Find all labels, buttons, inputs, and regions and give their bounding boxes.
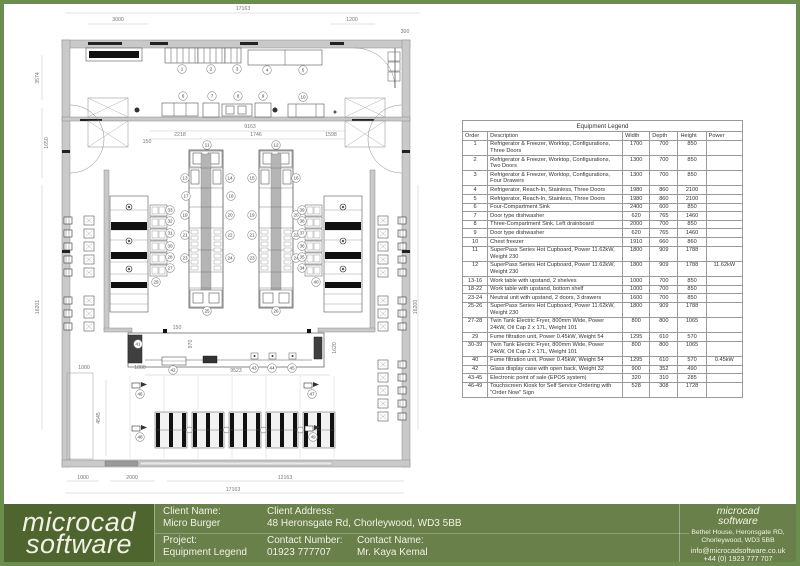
chair xyxy=(398,243,406,250)
item-marker-number: 36 xyxy=(299,244,305,249)
legend-cell: 1460 xyxy=(678,229,706,238)
hot-cupboard xyxy=(190,290,222,307)
legend-cell: SuperPass Series Hot Cupboard, Power 11.… xyxy=(488,246,623,261)
kiosk-flag xyxy=(313,382,319,387)
legend-col-header: Order xyxy=(463,132,488,141)
plan-shape xyxy=(152,231,158,238)
legend-cell: 570 xyxy=(678,333,706,342)
legend-cell: 600 xyxy=(650,203,678,212)
legend-cell: Door type dishwasher xyxy=(488,229,623,238)
legend-cell: 46-49 xyxy=(463,382,488,397)
item-marker-number: 29 xyxy=(153,280,159,285)
legend-col-header: Description xyxy=(488,132,623,141)
floor-drain xyxy=(273,108,278,113)
legend-cell xyxy=(706,212,742,221)
wall xyxy=(104,328,132,332)
legend-cell: 700 xyxy=(650,285,678,294)
legend-cell: Refrigerator & Freezer, Worktop, Configu… xyxy=(488,140,623,155)
item-marker-number: 43 xyxy=(251,366,257,371)
legend-cell: Work table with upstand, bottom shelf xyxy=(488,285,623,294)
client-fields: Client Name: Micro Burger Client Address… xyxy=(154,504,689,562)
legend-cell: 765 xyxy=(650,212,678,221)
wall-segment xyxy=(240,42,258,45)
item-marker-number: 1 xyxy=(181,67,184,72)
legend-cell: 850 xyxy=(678,156,706,171)
logo-block: microcad software xyxy=(4,504,154,562)
dimension-label: 1200 xyxy=(346,17,358,23)
legend-cell: Work table with upstand, 2 shelves xyxy=(488,277,623,286)
dimension-label: 4545 xyxy=(96,412,102,424)
legend-cell: 2 xyxy=(463,156,488,171)
legend-title: Equipment Legend xyxy=(463,121,743,132)
counter-unit xyxy=(128,335,142,363)
legend-cell: 1000 xyxy=(623,285,650,294)
item-marker-number: 20 xyxy=(293,213,299,218)
table-top xyxy=(111,282,147,288)
table-row: 30-39Twin Tank Electric Fryer, 800mm Wid… xyxy=(463,341,743,356)
legend-cell: 42 xyxy=(463,365,488,374)
legend-cell: 909 xyxy=(650,246,678,261)
table-connector xyxy=(261,427,267,433)
legend-cell: 1300 xyxy=(623,171,650,186)
plan-shape xyxy=(307,243,313,250)
legend-cell: 909 xyxy=(650,302,678,317)
legend-cell: SuperPass Series Hot Cupboard, Power 11.… xyxy=(488,261,623,276)
legend-cell: 2000 xyxy=(623,220,650,229)
legend-cell: 27-28 xyxy=(463,317,488,332)
counter-shelf xyxy=(89,51,139,58)
plan-shape xyxy=(214,266,221,270)
dimension-label: 2000 xyxy=(126,475,138,481)
plan-shape xyxy=(191,260,198,264)
item-marker-number: 26 xyxy=(273,309,279,314)
plan-shape xyxy=(314,219,320,226)
plan-shape xyxy=(159,231,165,238)
plan-shape xyxy=(214,242,221,246)
item-marker-number: 18 xyxy=(228,194,234,199)
wall-cabinet xyxy=(388,62,400,71)
legend-cell: 1460 xyxy=(678,212,706,221)
item-marker-number: 14 xyxy=(227,176,233,181)
table-top xyxy=(325,282,361,288)
dimension-label: 300 xyxy=(401,29,410,35)
legend-cell: Glass display case with open back, Weigh… xyxy=(488,365,623,374)
company-name: microcad software xyxy=(680,507,796,527)
legend-cell: 700 xyxy=(650,140,678,155)
chair xyxy=(398,217,406,224)
counter-unit xyxy=(314,337,322,359)
legend-cell: 1788 xyxy=(678,302,706,317)
plan-shape xyxy=(214,260,221,264)
dimension-label: 150 xyxy=(173,325,182,331)
item-marker-number: 12 xyxy=(273,143,279,148)
legend-cell: Fume filtration unit, Power 0.45kW, Weig… xyxy=(488,333,623,342)
title-block: microcad software Client Name: Micro Bur… xyxy=(4,504,796,562)
item-marker-number: 37 xyxy=(299,231,305,236)
legend-cell: 1600 xyxy=(623,294,650,303)
item-marker-number: 40 xyxy=(313,280,319,285)
item-marker-number: 48 xyxy=(137,435,143,440)
legend-cell: 620 xyxy=(623,212,650,221)
dimension-label: 9163 xyxy=(244,124,256,130)
legend-cell: 660 xyxy=(650,238,678,247)
legend-cell xyxy=(706,246,742,261)
item-marker-number: 30 xyxy=(167,244,173,249)
plan-shape xyxy=(307,267,313,274)
pillar xyxy=(307,329,311,333)
dimension-label: 1000 xyxy=(77,475,89,481)
legend-cell: 800 xyxy=(650,341,678,356)
queue-area xyxy=(67,373,93,459)
plan-shape xyxy=(307,231,313,238)
legend-cell: 850 xyxy=(678,294,706,303)
chair xyxy=(398,297,406,304)
chair xyxy=(398,374,406,381)
legend-cell: 18-22 xyxy=(463,285,488,294)
dimension-label: 1000 xyxy=(134,365,146,371)
item-marker-number: 20 xyxy=(227,213,233,218)
wall xyxy=(318,328,375,332)
legend-cell: SuperPass Series Hot Cupboard, Power 11.… xyxy=(488,302,623,317)
legend-cell: 2400 xyxy=(623,203,650,212)
legend-cell: 860 xyxy=(678,238,706,247)
legend-cell: 1065 xyxy=(678,341,706,356)
stockpot-dot xyxy=(342,206,344,208)
plan-shape xyxy=(284,236,291,240)
legend-cell: 285 xyxy=(678,374,706,383)
legend-cell: Touchscreen Kiosk for Self Service Order… xyxy=(488,382,623,397)
plan-shape xyxy=(191,236,198,240)
legend-cell: Chest freezer xyxy=(488,238,623,247)
table-row: 13-16Work table with upstand, 2 shelves1… xyxy=(463,277,743,286)
plan-shape xyxy=(284,266,291,270)
table-connector xyxy=(187,427,193,433)
plan-shape xyxy=(214,230,221,234)
dimension-label: 3574 xyxy=(35,72,41,84)
item-marker-number: 35 xyxy=(299,255,305,260)
table-row: 29Fume filtration unit, Power 0.45kW, We… xyxy=(463,333,743,342)
plan-shape xyxy=(261,242,268,246)
chair xyxy=(64,310,72,317)
plan-shape xyxy=(284,260,291,264)
legend-cell: 800 xyxy=(623,341,650,356)
chest-freezer xyxy=(288,104,324,117)
table-row: 25-26SuperPass Series Hot Cupboard, Powe… xyxy=(463,302,743,317)
field-label: Client Name: xyxy=(163,506,263,518)
item-marker-number: 39 xyxy=(299,208,305,213)
legend-cell xyxy=(706,374,742,383)
legend-cell xyxy=(706,229,742,238)
table-row: 7Door type dishwasher6207651460 xyxy=(463,212,743,221)
plan-shape xyxy=(261,248,268,252)
legend-cell: 25-26 xyxy=(463,302,488,317)
item-marker-number: 33 xyxy=(167,208,173,213)
legend-cell: 6 xyxy=(463,203,488,212)
chair xyxy=(398,413,406,420)
plan-shape xyxy=(191,230,198,234)
legend-cell: 1000 xyxy=(623,277,650,286)
legend-cell: 1800 xyxy=(623,302,650,317)
legend-cell: 620 xyxy=(623,229,650,238)
dimension-label: 150 xyxy=(143,139,152,145)
chair xyxy=(64,230,72,237)
plan-shape xyxy=(314,243,320,250)
legend-cell: 1800 xyxy=(623,261,650,276)
legend-cell: 850 xyxy=(678,220,706,229)
plan-shape xyxy=(261,260,268,264)
company-name-line2: software xyxy=(680,517,796,527)
dimension-label: 1746 xyxy=(250,132,262,138)
plan-shape xyxy=(284,242,291,246)
legend-cell xyxy=(706,302,742,317)
wall-segment xyxy=(62,250,70,253)
wall xyxy=(370,170,375,330)
legend-cell: 765 xyxy=(650,229,678,238)
chair xyxy=(64,256,72,263)
dimension-label: 16200 xyxy=(413,300,419,315)
kiosk xyxy=(304,383,312,388)
entry-door xyxy=(105,461,138,466)
legend-cell: 3 xyxy=(463,171,488,186)
legend-cell: 1980 xyxy=(623,195,650,204)
legend-cell: 700 xyxy=(650,171,678,186)
item-marker-number: 24 xyxy=(227,256,233,261)
item-marker-number: 9 xyxy=(262,94,265,99)
legend-cell: 7 xyxy=(463,212,488,221)
equipment-legend-table: Equipment LegendOrderDescriptionWidthDep… xyxy=(462,120,743,398)
company-phone: +44 (0) 1923 777 707 xyxy=(680,555,796,563)
legend-cell: Three-Compartment Sink, Left drainboard xyxy=(488,220,623,229)
wall-segment xyxy=(402,250,410,253)
item-marker-number: 34 xyxy=(299,266,305,271)
fields-row-1: Client Name: Micro Burger Client Address… xyxy=(155,504,689,534)
item-marker-number: 19 xyxy=(182,213,188,218)
wall xyxy=(62,40,70,467)
stockpot-dot xyxy=(342,268,344,270)
chair xyxy=(398,269,406,276)
chair xyxy=(398,323,406,330)
legend-cell: 23-24 xyxy=(463,294,488,303)
dimension-label: 1598 xyxy=(325,132,337,138)
legend-cell xyxy=(706,317,742,332)
legend-cell: 1788 xyxy=(678,261,706,276)
item-marker-number: 44 xyxy=(269,366,275,371)
field-project: Project: Equipment Legend xyxy=(163,535,263,558)
legend-cell: Refrigerator & Freezer, Worktop, Configu… xyxy=(488,171,623,186)
legend-cell: 13-16 xyxy=(463,277,488,286)
chair xyxy=(398,230,406,237)
legend-cell xyxy=(706,156,742,171)
legend-cell: 1 xyxy=(463,140,488,155)
legend-cell xyxy=(706,140,742,155)
field-label: Client Address: xyxy=(267,506,462,518)
item-marker-number: 3 xyxy=(236,67,239,72)
table-top xyxy=(325,252,361,259)
plan-shape xyxy=(284,254,291,258)
table-row: 9Door type dishwasher6207651460 xyxy=(463,229,743,238)
shopfront-glazing xyxy=(140,462,332,465)
item-marker-number: 21 xyxy=(182,233,188,238)
legend-cell: Twin Tank Electric Fryer, 800mm Wide, Po… xyxy=(488,341,623,356)
field-value: Equipment Legend xyxy=(163,547,263,559)
plan-shape xyxy=(159,219,165,226)
legend-cell: 2100 xyxy=(678,195,706,204)
item-marker-number: 8 xyxy=(237,94,240,99)
item-marker-number: 5 xyxy=(302,68,305,73)
table-top xyxy=(111,252,147,259)
company-info: microcad software Bethel House, Heronsga… xyxy=(679,504,796,562)
legend-cell: 320 xyxy=(623,374,650,383)
plan-shape xyxy=(159,255,165,262)
plan-shape xyxy=(314,207,320,214)
legend-cell: 1980 xyxy=(623,186,650,195)
item-marker-number: 2 xyxy=(210,67,213,72)
legend-cell: Refrigerator & Freezer, Worktop, Configu… xyxy=(488,156,623,171)
dishwasher xyxy=(255,103,271,117)
chair xyxy=(398,256,406,263)
item-marker-number: 41 xyxy=(135,342,141,347)
legend-cell: 0.45kW xyxy=(706,356,742,365)
item-marker-number: 21 xyxy=(249,233,255,238)
legend-cell xyxy=(706,238,742,247)
chair xyxy=(398,310,406,317)
item-marker-number: 46 xyxy=(137,392,143,397)
plan-shape xyxy=(214,254,221,258)
table-row: 42Glass display case with open back, Wei… xyxy=(463,365,743,374)
legend-cell: Four-Compartment Sink xyxy=(488,203,623,212)
legend-cell: Fume filtration unit, Power 0.45kW, Weig… xyxy=(488,356,623,365)
field-label: Contact Number: xyxy=(267,535,343,547)
chair xyxy=(398,361,406,368)
table-top xyxy=(325,222,361,230)
chair xyxy=(64,269,72,276)
legend-cell: 1800 xyxy=(623,246,650,261)
legend-col-header: Width xyxy=(623,132,650,141)
item-marker-number: 13 xyxy=(182,176,188,181)
plan-shape xyxy=(261,230,268,234)
legend-cell: 310 xyxy=(650,374,678,383)
wall-segment xyxy=(352,119,374,121)
legend-cell xyxy=(706,285,742,294)
field-contact-number: Contact Number: 01923 777707 xyxy=(267,535,343,558)
chair xyxy=(398,400,406,407)
table-row: 40Fume filtration unit, Power 0.45kW, We… xyxy=(463,356,743,365)
plan-shape xyxy=(284,248,291,252)
plan-shape xyxy=(191,254,198,258)
legend-col-header: Power xyxy=(706,132,742,141)
field-client-name: Client Name: Micro Burger xyxy=(163,506,263,529)
legend-cell: Refrigerator, Reach-In, Stainless, Three… xyxy=(488,186,623,195)
legend-cell: 860 xyxy=(650,195,678,204)
legend-cell: 5 xyxy=(463,195,488,204)
legend-cell xyxy=(706,171,742,186)
table-row: 10Chest freezer1910660860 xyxy=(463,238,743,247)
field-contact-name: Contact Name: Mr. Kaya Kemal xyxy=(357,535,428,558)
dishwasher xyxy=(203,103,219,117)
item-marker-number: 23 xyxy=(249,256,255,261)
item-marker-number: 42 xyxy=(170,368,176,373)
legend-cell xyxy=(706,195,742,204)
table-top xyxy=(111,222,147,230)
legend-cell: 1728 xyxy=(678,382,706,397)
dimension-label: 970 xyxy=(188,340,194,349)
kiosk-flag xyxy=(141,382,147,387)
plan-shape xyxy=(284,230,291,234)
chair xyxy=(398,387,406,394)
dimension-label: 17163 xyxy=(226,487,241,493)
legend-cell: 610 xyxy=(650,333,678,342)
plan-shape xyxy=(314,255,320,262)
kiosk xyxy=(132,383,140,388)
wall-cabinet xyxy=(388,52,400,61)
epos-dot xyxy=(272,355,274,357)
legend-cell: 610 xyxy=(650,356,678,365)
stockpot-dot xyxy=(128,268,130,270)
wall-segment xyxy=(88,42,122,45)
dimension-label: 17163 xyxy=(236,6,251,12)
field-label: Contact Name: xyxy=(357,535,428,547)
item-marker-number: 16 xyxy=(293,176,299,181)
kiosk xyxy=(305,426,313,431)
legend-cell: 43-45 xyxy=(463,374,488,383)
legend-cell: 850 xyxy=(678,171,706,186)
item-marker-number: 31 xyxy=(167,231,173,236)
dimension-label: 1650 xyxy=(44,137,50,149)
field-value: 48 Heronsgate Rd, Chorleywood, WD3 5BB xyxy=(267,518,462,530)
legend-cell: Door type dishwasher xyxy=(488,212,623,221)
plan-shape xyxy=(152,267,158,274)
legend-cell: 850 xyxy=(678,285,706,294)
fields-row-2: Project: Equipment Legend Contact Number… xyxy=(155,533,689,562)
table-row: 1Refrigerator & Freezer, Worktop, Config… xyxy=(463,140,743,155)
worktop-fridge xyxy=(198,48,225,63)
table-row: 8Three-Compartment Sink, Left drainboard… xyxy=(463,220,743,229)
wall-segment xyxy=(330,42,344,45)
item-marker-number: 15 xyxy=(249,176,255,181)
legend-cell: 2100 xyxy=(678,186,706,195)
plan-shape xyxy=(307,219,313,226)
item-marker-number: 23 xyxy=(182,256,188,261)
dimension-label: 2218 xyxy=(174,132,186,138)
worktop-fridge xyxy=(225,48,241,63)
stockpot-dot xyxy=(342,240,344,242)
legend-cell: 9 xyxy=(463,229,488,238)
plan-shape xyxy=(152,243,158,250)
legend-cell: 1700 xyxy=(623,140,650,155)
plan-shape xyxy=(191,248,198,252)
dimension-label: 12163 xyxy=(278,475,293,481)
legend-cell: 570 xyxy=(678,356,706,365)
chair xyxy=(64,243,72,250)
legend-cell: 528 xyxy=(623,382,650,397)
item-marker-number: 4 xyxy=(266,68,269,73)
legend-cell: 700 xyxy=(650,220,678,229)
item-marker-number: 25 xyxy=(204,309,210,314)
legend-cell xyxy=(706,341,742,356)
legend-cell xyxy=(706,277,742,286)
legend-cell xyxy=(706,365,742,374)
plan-shape xyxy=(159,243,165,250)
plan-shape xyxy=(152,207,158,214)
item-marker-number: 7 xyxy=(211,94,214,99)
legend-cell: 900 xyxy=(623,365,650,374)
legend-cell: Neutral unit with upstand, 2 doors, 3 dr… xyxy=(488,294,623,303)
kiosk xyxy=(132,426,140,431)
legend-cell: 30-39 xyxy=(463,341,488,356)
legend-cell: 352 xyxy=(650,365,678,374)
dimension-label: 3000 xyxy=(112,17,124,23)
table-row: 23-24Neutral unit with upstand, 2 doors,… xyxy=(463,294,743,303)
